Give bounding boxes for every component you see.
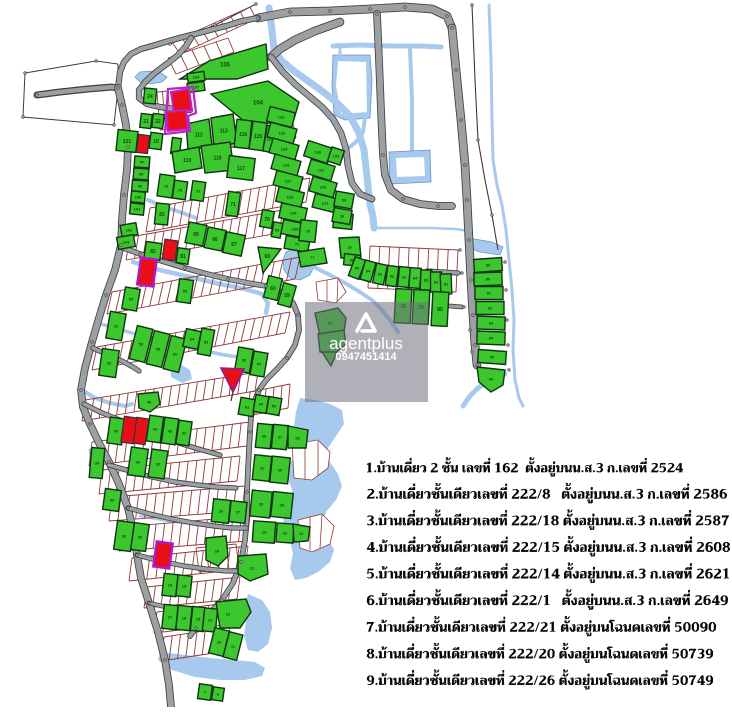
svg-text:77: 77 [310, 255, 315, 260]
svg-text:18: 18 [168, 583, 173, 588]
svg-text:95: 95 [490, 355, 495, 360]
svg-text:53: 53 [129, 297, 134, 302]
svg-text:102: 102 [126, 228, 133, 233]
svg-text:116: 116 [239, 132, 247, 138]
svg-text:91: 91 [402, 275, 407, 280]
svg-text:95: 95 [355, 266, 360, 271]
svg-text:109: 109 [193, 75, 200, 80]
svg-text:64: 64 [190, 337, 195, 342]
svg-text:73: 73 [178, 188, 183, 193]
svg-text:59: 59 [272, 404, 277, 409]
svg-text:129: 129 [283, 163, 290, 168]
svg-text:118: 118 [213, 156, 221, 162]
svg-text:93: 93 [489, 321, 494, 326]
svg-text:78: 78 [306, 229, 311, 234]
svg-text:89: 89 [486, 263, 491, 268]
svg-text:22: 22 [155, 119, 161, 125]
svg-text:15: 15 [196, 617, 201, 622]
svg-text:36: 36 [262, 434, 267, 439]
svg-text:60: 60 [259, 402, 264, 407]
svg-text:66: 66 [212, 237, 218, 243]
svg-text:21: 21 [143, 119, 149, 125]
svg-text:33: 33 [110, 498, 115, 503]
svg-text:32: 32 [156, 462, 161, 467]
svg-text:72: 72 [295, 242, 300, 247]
svg-text:131: 131 [333, 154, 340, 159]
svg-text:58: 58 [139, 342, 144, 347]
svg-text:30: 30 [342, 198, 347, 203]
svg-text:45: 45 [114, 429, 119, 434]
svg-text:60: 60 [270, 286, 276, 292]
svg-text:72: 72 [196, 189, 201, 194]
svg-text:83: 83 [424, 278, 429, 283]
svg-text:108: 108 [292, 227, 299, 232]
svg-text:21: 21 [250, 565, 255, 570]
svg-text:122: 122 [318, 168, 325, 173]
svg-text:83: 83 [159, 212, 165, 218]
svg-text:59: 59 [156, 347, 161, 352]
svg-text:59: 59 [275, 228, 280, 233]
svg-text:20: 20 [215, 549, 220, 554]
svg-text:119: 119 [183, 158, 191, 164]
svg-text:106: 106 [290, 211, 297, 216]
svg-text:10: 10 [217, 640, 222, 645]
svg-text:128: 128 [287, 195, 294, 200]
svg-text:31: 31 [260, 466, 265, 471]
svg-text:17: 17 [168, 615, 173, 620]
svg-text:24: 24 [147, 94, 153, 100]
svg-text:23: 23 [262, 530, 267, 535]
svg-text:27: 27 [236, 510, 241, 515]
svg-text:53: 53 [204, 340, 209, 345]
svg-text:0947451414: 0947451414 [335, 351, 397, 363]
svg-text:10: 10 [153, 139, 159, 145]
svg-text:111: 111 [123, 139, 132, 145]
svg-text:34: 34 [136, 460, 141, 465]
svg-text:121: 121 [322, 201, 329, 206]
svg-text:56: 56 [242, 358, 247, 363]
svg-text:103: 103 [123, 240, 130, 245]
svg-text:39: 39 [95, 461, 100, 466]
svg-text:29: 29 [280, 503, 285, 508]
svg-text:133: 133 [320, 185, 327, 190]
svg-text:67: 67 [231, 242, 237, 248]
svg-text:30: 30 [278, 468, 283, 473]
svg-text:123: 123 [278, 115, 285, 120]
svg-text:70: 70 [264, 217, 270, 223]
svg-text:113: 113 [220, 128, 228, 134]
svg-text:68: 68 [265, 254, 271, 260]
svg-text:51: 51 [114, 324, 119, 329]
svg-text:117: 117 [237, 166, 245, 172]
svg-text:48: 48 [147, 400, 152, 405]
svg-text:105: 105 [220, 62, 231, 68]
svg-text:36: 36 [122, 534, 127, 539]
svg-text:97: 97 [140, 160, 145, 165]
svg-text:22: 22 [299, 531, 304, 536]
svg-text:26: 26 [219, 509, 224, 514]
svg-text:81: 81 [180, 254, 186, 260]
svg-text:55: 55 [183, 289, 188, 294]
svg-text:82: 82 [434, 280, 439, 285]
svg-text:104: 104 [253, 100, 264, 106]
svg-text:97: 97 [348, 245, 353, 250]
svg-text:52: 52 [107, 361, 112, 366]
svg-text:65: 65 [193, 232, 199, 238]
svg-text:92: 92 [488, 306, 493, 311]
svg-text:22: 22 [283, 531, 288, 536]
svg-text:101: 101 [134, 207, 141, 212]
svg-text:90: 90 [486, 277, 491, 282]
svg-text:92: 92 [390, 274, 395, 279]
svg-text:44: 44 [153, 427, 158, 432]
svg-text:80: 80 [437, 307, 443, 313]
svg-text:96: 96 [489, 377, 494, 382]
svg-text:28: 28 [259, 502, 264, 507]
svg-text:81: 81 [444, 282, 449, 287]
svg-text:60: 60 [173, 352, 178, 357]
svg-text:98: 98 [138, 184, 143, 189]
svg-text:42: 42 [182, 431, 187, 436]
svg-text:126: 126 [279, 131, 286, 136]
svg-text:93: 93 [378, 272, 383, 277]
svg-text:115: 115 [254, 134, 262, 140]
svg-text:59: 59 [284, 293, 290, 299]
svg-text:19: 19 [182, 584, 187, 589]
svg-text:71: 71 [230, 202, 236, 208]
svg-text:82: 82 [150, 249, 156, 255]
svg-text:76: 76 [164, 184, 169, 189]
svg-text:35: 35 [138, 535, 143, 540]
svg-text:38: 38 [295, 436, 300, 441]
svg-text:94: 94 [489, 336, 494, 341]
svg-text:14: 14 [208, 618, 213, 623]
svg-text:99: 99 [139, 172, 144, 177]
svg-text:16: 16 [182, 616, 187, 621]
svg-text:112: 112 [195, 133, 203, 139]
svg-text:84: 84 [413, 276, 418, 281]
svg-text:125: 125 [281, 147, 288, 152]
svg-text:37: 37 [278, 435, 283, 440]
svg-text:57: 57 [257, 362, 262, 367]
svg-text:43: 43 [168, 429, 173, 434]
svg-text:127: 127 [285, 179, 292, 184]
svg-text:36: 36 [340, 214, 345, 219]
svg-text:91: 91 [487, 291, 492, 296]
svg-text:13: 13 [226, 612, 231, 617]
svg-text:130: 130 [315, 150, 322, 155]
svg-text:94: 94 [366, 269, 371, 274]
svg-text:100: 100 [135, 195, 142, 200]
svg-text:61: 61 [245, 405, 250, 410]
